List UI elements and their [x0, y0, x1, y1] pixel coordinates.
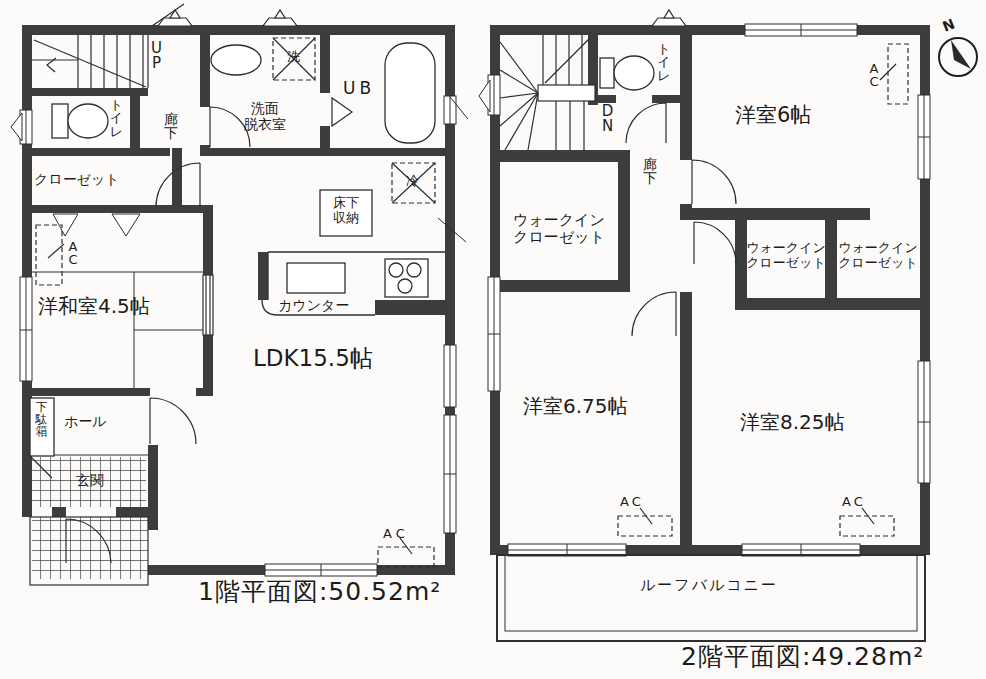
label-fridge: 冷: [406, 174, 419, 188]
label-closet: クローゼット: [34, 172, 120, 187]
label-wic-left: ウォークインクローゼット: [501, 212, 617, 247]
label-washroom: 洗面脱衣室: [215, 100, 315, 132]
label-ac-ldk: AC: [383, 527, 409, 541]
label-entrance: 玄関: [76, 473, 104, 488]
compass-icon: [939, 38, 977, 76]
label-stairs-down: DN: [600, 104, 615, 135]
label-floor-storage: 床下収納: [321, 196, 371, 226]
roof-vents-1f: [152, 4, 297, 26]
label-corridor-2f: 廊下: [642, 157, 658, 186]
label-japanese-room: 洋和室4.5帖: [38, 295, 150, 317]
stairs-1f: [32, 35, 148, 88]
label-corridor-1f: 廊下: [163, 112, 179, 141]
floor-plan-document: UP トイレ 廊下 クローゼット 洗面脱衣室 洗 UB 冷 床下収納 AC 洋和…: [0, 0, 986, 679]
fixtures-2f: [600, 56, 654, 90]
label-shoe-box: 下駄箱: [35, 401, 48, 438]
label-washer: 洗: [287, 50, 300, 64]
label-stairs-up: UP: [149, 41, 164, 72]
label-toilet-2f: トイレ: [657, 42, 671, 82]
roof-vent-2f: [652, 10, 686, 26]
label-western-825: 洋室8.25帖: [740, 411, 845, 433]
label-counter: カウンター: [278, 298, 349, 313]
stairs-2f: [500, 35, 595, 150]
floor-plan-drawing: [0, 0, 986, 679]
label-balcony: ルーフバルコニー: [640, 577, 778, 594]
label-toilet-1f: トイレ: [109, 98, 124, 138]
label-bath: UB: [343, 79, 375, 98]
label-western-675: 洋室6.75帖: [523, 395, 628, 417]
label-ac-western675: AC: [620, 495, 644, 509]
label-ac-western6: AC: [867, 62, 881, 89]
label-wic-middle: ウォークインクローゼット: [736, 241, 836, 271]
label-ldk: LDK15.5帖: [253, 346, 373, 371]
label-ac-western825: AC: [842, 495, 866, 509]
caption-floor2: 2階平面図:49.28m²: [681, 643, 924, 671]
label-hall: ホール: [64, 414, 107, 429]
label-western-6: 洋室6帖: [735, 104, 811, 127]
balcony-outline: [497, 555, 925, 641]
label-ac-japanese-room: AC: [66, 240, 80, 267]
caption-floor1: 1階平面図:50.52m²: [198, 578, 441, 606]
label-wic-right: ウォークインクローゼット: [828, 241, 928, 271]
